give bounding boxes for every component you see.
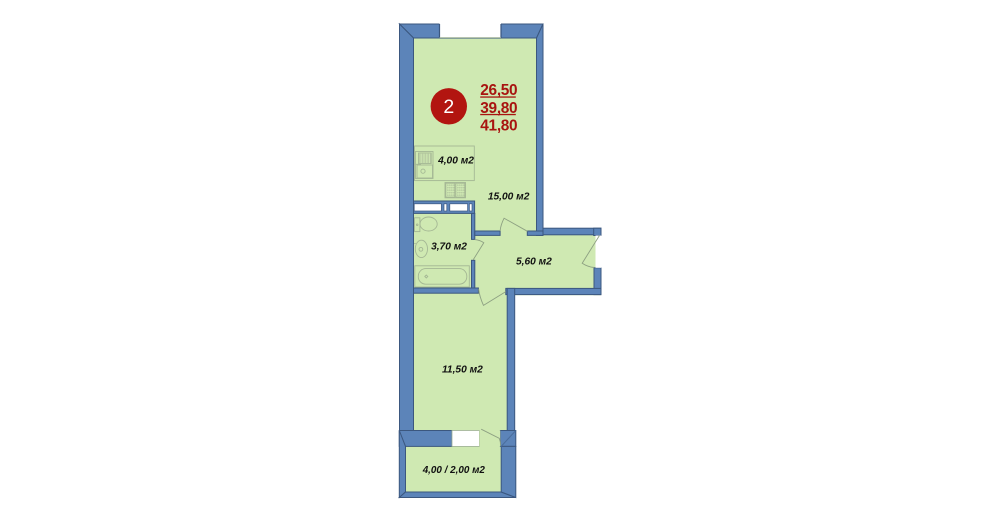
svg-text:2: 2	[443, 96, 454, 118]
svg-text:4,00 / 2,00 м2: 4,00 / 2,00 м2	[422, 465, 486, 476]
svg-text:41,80: 41,80	[480, 118, 517, 135]
svg-text:4,00 м2: 4,00 м2	[437, 156, 474, 167]
svg-text:15,00 м2: 15,00 м2	[488, 192, 530, 203]
svg-text:3,70 м2: 3,70 м2	[431, 242, 467, 253]
svg-text:11,50 м2: 11,50 м2	[442, 364, 483, 375]
svg-text:5,60 м2: 5,60 м2	[516, 257, 552, 268]
